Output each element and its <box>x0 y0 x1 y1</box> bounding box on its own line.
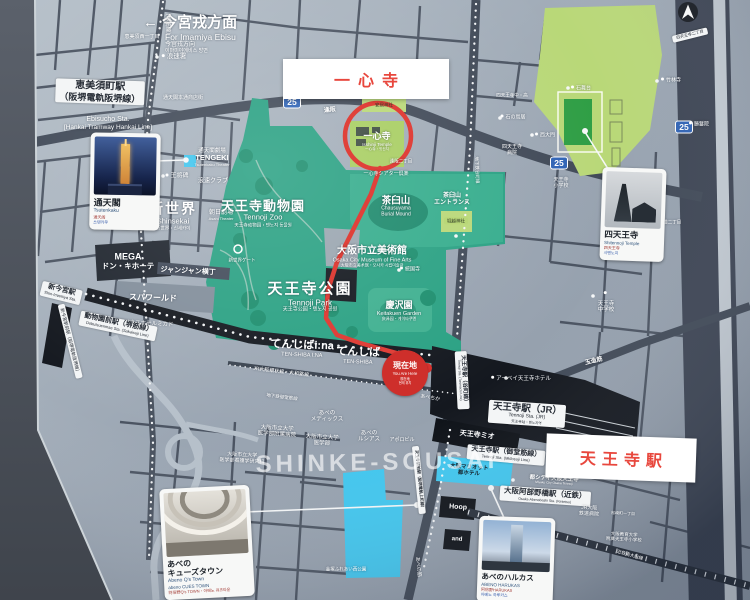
poi-hondori: 通天閣本通商店街 <box>163 96 203 102</box>
tower-shape <box>120 144 130 184</box>
tower-spire-shape <box>125 139 127 146</box>
area-keitakuen: 慶沢園 Keitakuen Garden 庆泽园・게이타쿠엔 <box>377 300 421 322</box>
poi-isshinji-theater: 一心寺シアター倶楽 <box>363 172 408 178</box>
direction-jp: ← 今宮戎方面 <box>143 14 237 32</box>
block-label-osaka2: 逢阪二丁目 <box>390 158 413 163</box>
area-museum: 大阪市立美術館 Osaka City Museum of Fine Arts 大… <box>333 246 412 269</box>
poi-abey-hotel: アーベイ天王寺ホテル <box>491 376 551 382</box>
poi-medix: あべの メディックス <box>311 411 343 424</box>
area-zoo: 天王寺動物園 Tennoji Zoo 天王寺动物园・텐노지 동물원 <box>221 198 305 227</box>
skyline-shape <box>482 561 550 572</box>
poi-jr-hospital: JR大阪 鉄道病院 <box>579 506 600 519</box>
poi-chausu-entrance: 茶臼山 エントランス <box>434 193 470 207</box>
poi-shitennoji-hospital: 四天王寺 病院 <box>502 145 522 157</box>
poi-naniwa-club: 浪速クラブ <box>198 178 228 185</box>
block-label-ebisunishi: 恵美須西一丁目 <box>124 35 159 41</box>
area-tenshiba: てんしば TEN-SHIBA <box>336 346 381 367</box>
poi-apollo: アポロビル <box>389 438 414 444</box>
poi-osho: 王将碑 <box>165 173 188 180</box>
poi-chikurinji: 竹林寺 <box>661 78 681 85</box>
map-signboard-photo: 25 25 25 ← 今宮戎方面 For Imamiya Ebisu 今宫戎方向… <box>0 0 750 600</box>
area-tenshiba-ina: てんしばi:na TEN-SHIBA I:NA <box>270 338 334 360</box>
photo-card-shitennoji: 四天王寺 Shitennoji Temple 四天王寺 시텐노지 <box>599 167 666 263</box>
skyscraper-shape <box>510 525 523 563</box>
area-park: 天王寺公園 Tennoji Park 天王寺公园・텐노지 공원 <box>267 280 352 313</box>
poi-and: and <box>451 536 462 544</box>
poi-tokokuji: 統国寺 <box>400 267 420 274</box>
current-location-marker: 現在地 You Are Here 现在地 현재 위치 <box>382 350 428 396</box>
tower-base-shape <box>108 184 142 196</box>
poi-univ-hospital: 大阪市立大学 医学部附属病院 <box>257 425 296 440</box>
poi-hoop: Hoop <box>449 503 467 512</box>
station-label-ebisucho: 恵美須町駅 （阪堺電軌阪堺線） <box>55 78 145 105</box>
poi-shinsekai-gate: 新世界ゲート <box>229 257 256 262</box>
pagoda-shape <box>614 183 633 222</box>
callout-tennoji-station: 天王寺駅 <box>545 433 696 482</box>
road-label-abenosuji: あべの筋 <box>413 557 421 578</box>
poi-yasui-shrine: 安居神社 <box>375 102 393 107</box>
poi-tennoji-es: 天王寺 小学校 <box>553 178 568 190</box>
shitennoji-photo <box>605 171 663 229</box>
photo-card-tsutenkaku: 通天閣 Tsutenkaku 通天阁 쓰텐카쿠 <box>89 132 161 230</box>
poi-tsutenkaku-theater: 通天閣劇場 TENGEKI Tsutenkaku Theater <box>194 148 229 168</box>
area-chausuyama: 茶臼山 Chausuyama Burial Mound <box>381 196 410 219</box>
callout-isshinji: 一心寺 <box>283 59 449 99</box>
poi-kyoiku-univ: 大阪教育大学 附属天王寺小学校 <box>606 531 643 543</box>
poi-lucias: あべの ルシアス <box>358 431 380 444</box>
poi-naniwa-police: 浪速署 <box>162 53 187 61</box>
poi-shitennoji-hs: 四天王寺中・高 <box>496 92 528 97</box>
road-label-osakazaka: 逢阪 <box>324 107 337 115</box>
tsutenkaku-photo <box>94 136 157 195</box>
mall-base-shape <box>166 539 249 557</box>
poi-spaworld: スパワールド <box>129 292 177 303</box>
poi-tennoji-jhs: 天王寺 中学校 <box>598 282 615 314</box>
poi-univ-med: 大阪市立大学 医学部 <box>305 434 339 449</box>
railway-label-sakaisuji: （堺筋線） <box>163 10 170 38</box>
photo-watermark: SHINKE-SOUSAI <box>255 447 498 479</box>
poi-ishibutai: 石舞台 <box>571 86 591 93</box>
poi-kanazuka-park: 金塚ふれあい西公園 <box>326 566 367 571</box>
poi-mega-donki: MEGA ドン・キホーテ <box>102 251 155 270</box>
temple-hall-shape <box>632 202 657 223</box>
photo-card-qstown: あべの キューズタウン Abeno Q's Town abeno CUES TO… <box>159 485 255 600</box>
poi-horikoshi-shrine: 堀越神社 <box>444 217 468 224</box>
poi-stone-torii: 石の鳥居 <box>500 115 525 122</box>
photo-card-harukas: あべのハルカス ABENO HARUKAS 阿倍野HARUKAS 아베노 하루카… <box>477 516 556 600</box>
poi-saidaimon: 西大門 <box>535 133 555 140</box>
qstown-photo <box>163 489 248 557</box>
poi-isshinji-map: 一心寺 Isshinji Temple 一心寺・잇신지 <box>362 131 391 151</box>
poi-shomanin: 勝鬘院 <box>689 122 709 129</box>
station-label-ebisucho-en: Ebisucho Sta. [Hankai Tramway Hankai Lin… <box>64 116 152 132</box>
railway-label-tanimachi: 地下鉄谷町線 <box>474 156 480 183</box>
harukas-photo <box>482 520 552 572</box>
